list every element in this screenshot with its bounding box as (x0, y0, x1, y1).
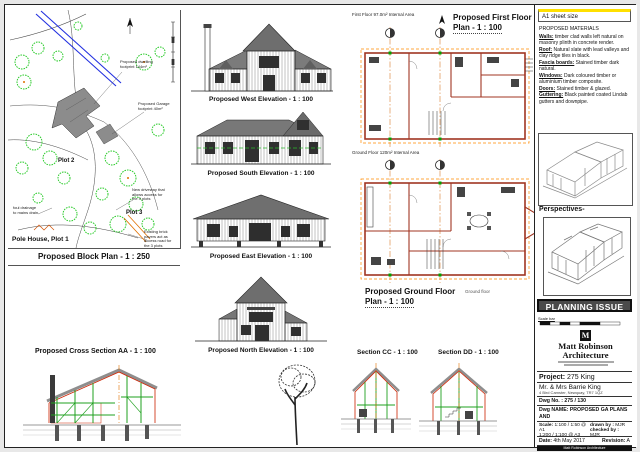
map-scale-bar-icon (171, 22, 175, 82)
section-cc-drawing (341, 361, 411, 449)
scale-row: Scale: 1:100 / 1:50 @ A1 1:200 / 1:100 @… (537, 422, 632, 437)
tree-icon (273, 355, 321, 447)
ground-floor-plan-drawing (351, 155, 539, 287)
section-dd-title: Section DD - 1 : 100 (438, 349, 499, 356)
materials-notes: PROPOSED MATERIALS Walls: timber clad wa… (539, 26, 632, 105)
ground-floor-title-line1: Proposed Ground Floor (365, 287, 455, 297)
firm-address-line (558, 361, 614, 363)
south-elevation-drawing (185, 106, 337, 168)
pavers-annotation: Existing brick pavers act as access road… (144, 230, 178, 248)
first-floor-plan-drawing (351, 13, 539, 153)
date-row: Date: 4th May 2017 Revision: A (537, 437, 632, 446)
survey-marker-icon (386, 161, 445, 170)
footer-bar: Matt Robinson Architecture (537, 446, 632, 451)
materials-item: Windows: Dark coloured timber or alumini… (539, 73, 632, 86)
ground-floor-title: Proposed Ground Floor Plan - 1 : 100 (365, 287, 455, 308)
first-floor-plan (351, 13, 539, 153)
plot1-label: Pole House, Plot 1 (12, 236, 69, 243)
plot2-label: Plot 2 (58, 158, 74, 164)
section-cc (341, 361, 411, 449)
perspective-sketch-2 (543, 217, 631, 296)
sheet-size-box: A1 sheet size (538, 9, 631, 22)
block-plan-title: Proposed Block Plan - 1 : 250 (8, 249, 180, 266)
materials-heading: PROPOSED MATERIALS (539, 26, 632, 33)
firm-crest-icon: M (580, 330, 591, 341)
dwelling-annotation: Proposed dwelling footprint 144m² (120, 60, 162, 69)
planning-issue-banner: PLANNING ISSUE (537, 299, 632, 312)
north-elevation (185, 267, 337, 345)
east-elevation (185, 183, 337, 251)
title-panel: A1 sheet size PROPOSED MATERIALS Walls: … (534, 5, 637, 447)
title-block: Project: 275 King Mr. & Mrs Barrie King … (537, 371, 632, 451)
ground-floor-note: Ground floor (465, 289, 490, 294)
materials-item: Fascia boards: Stained timber dark natur… (539, 60, 632, 73)
garage-annotation: Proposed Garage footprint 40m² (138, 102, 176, 111)
perspectives-label: Perspectives- (539, 206, 585, 213)
firm-address-line (564, 364, 608, 366)
north-elevation-drawing (185, 267, 337, 345)
north-arrow-icon (127, 18, 133, 34)
drainage-annotation: foul drainage to mains drain (13, 206, 39, 215)
client-address: 4 Bird Camster, Newquay, TR7 1QZ (539, 391, 630, 395)
drawing-sheet: Plot 2 Plot 3 Pole House, Plot 1 Propose… (4, 4, 636, 448)
south-elevation-title: Proposed South Elevation - 1 : 100 (185, 170, 337, 177)
materials-item: Walls: timber clad walls left natural on… (539, 34, 632, 47)
section-dd (419, 361, 497, 449)
east-elevation-drawing (185, 183, 337, 251)
block-plan: Plot 2 Plot 3 Pole House, Plot 1 Propose… (8, 10, 180, 268)
cross-section-aa (23, 363, 181, 447)
west-elevation-drawing (185, 13, 337, 95)
cross-section-aa-drawing (23, 363, 181, 447)
ground-floor-title-line2: Plan - 1 : 100 (365, 297, 414, 308)
north-elevation-title: Proposed North Elevation - 1 : 100 (185, 347, 337, 354)
materials-item: Roof: Natural slate with lead valleys an… (539, 47, 632, 60)
firm-name-line2: Architecture (535, 351, 636, 360)
section-aa-title: Proposed Cross Section AA - 1 : 100 (35, 348, 156, 355)
scale-bar: Scale bar (538, 316, 631, 328)
project-row: Project: 275 King (537, 372, 632, 383)
perspective-sketch-1 (538, 133, 633, 206)
scale-bar-ruler-icon (538, 321, 628, 327)
section-dd-drawing (419, 361, 497, 449)
drawing-name-row: Dwg NAME: PROPOSED GA PLANS AND SECTIONS… (537, 406, 632, 422)
east-elevation-title: Proposed East Elevation - 1 : 100 (185, 253, 337, 260)
firm-logo: M Matt Robinson Architecture (535, 330, 636, 366)
section-cc-title: Section CC - 1 : 100 (357, 349, 418, 356)
west-elevation-title: Proposed West Elevation - 1 : 100 (185, 96, 337, 103)
drawing-number-row: Dwg No. : 275 / 130 (537, 397, 632, 406)
ground-floor-plan (351, 155, 539, 287)
survey-marker-icon (386, 29, 445, 38)
block-plan-map: Plot 2 Plot 3 Pole House, Plot 1 Propose… (8, 10, 181, 249)
materials-item: Guttering: Black painted coated Lindab g… (539, 92, 632, 105)
west-elevation (185, 13, 337, 95)
plot3-label: Plot 3 (126, 210, 142, 216)
driveway-annotation: New driveway that allows access for the … (132, 188, 166, 202)
client-row: Mr. & Mrs Barrie King 4 Bird Camster, Ne… (537, 383, 632, 397)
south-elevation (185, 106, 337, 168)
